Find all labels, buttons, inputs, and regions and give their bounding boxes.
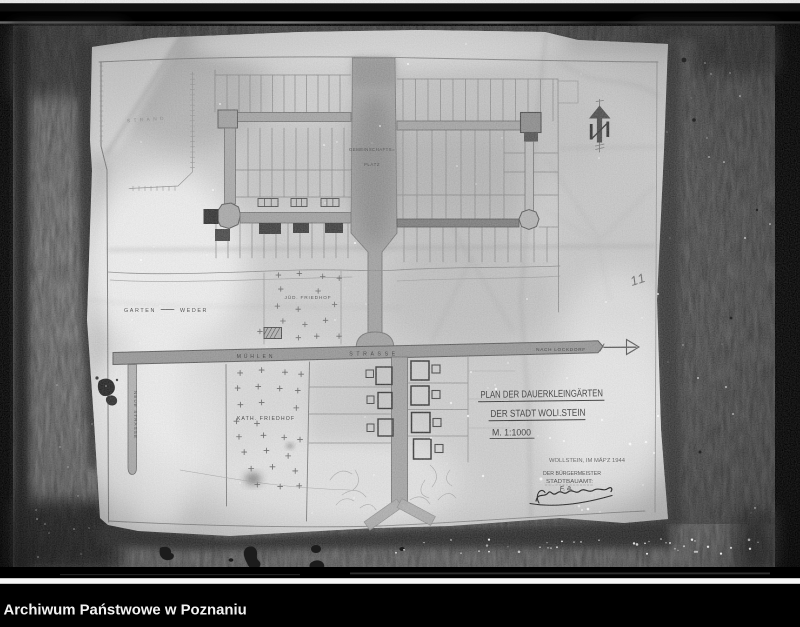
svg-text:Archiwum Państwowe w Poznaniu: Archiwum Państwowe w Poznaniu — [4, 602, 247, 618]
